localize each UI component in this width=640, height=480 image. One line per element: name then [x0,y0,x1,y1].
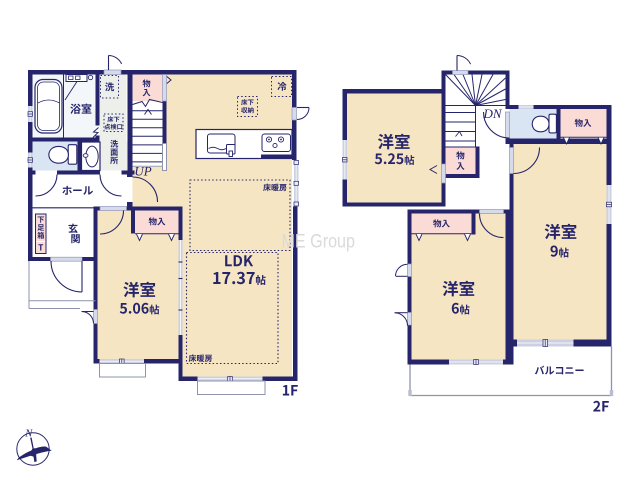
svg-text:UP: UP [134,164,151,179]
svg-text:ME Group: ME Group [282,231,356,253]
svg-text:N: N [24,428,33,439]
svg-text:DN: DN [482,106,502,121]
